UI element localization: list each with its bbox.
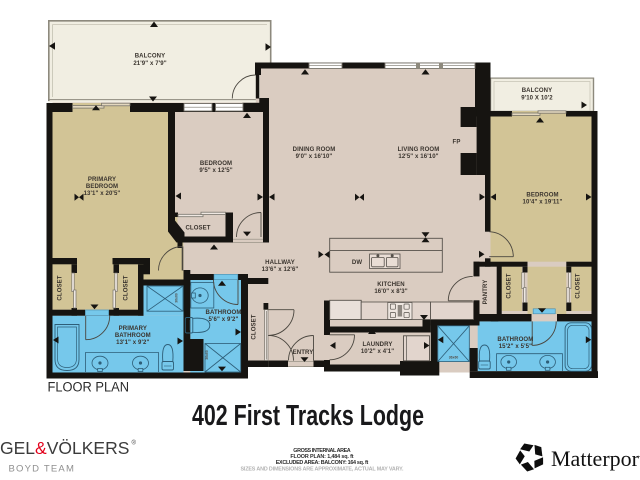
svg-text:BEDROOM: BEDROOM <box>200 161 232 167</box>
svg-text:13'6" x 12'6": 13'6" x 12'6" <box>262 267 299 273</box>
svg-text:CLOSET: CLOSET <box>576 273 582 298</box>
svg-text:BALCONY: BALCONY <box>522 88 553 94</box>
svg-text:10'4" x 19'11": 10'4" x 19'11" <box>523 200 563 206</box>
svg-text:LIVING ROOM: LIVING ROOM <box>398 147 440 153</box>
svg-text:PANTRY: PANTRY <box>483 280 489 305</box>
svg-text:BEDROOM: BEDROOM <box>86 184 118 190</box>
svg-text:13'1" x 20'5": 13'1" x 20'5" <box>84 191 121 197</box>
svg-text:10'2" x 4'1": 10'2" x 4'1" <box>361 349 394 355</box>
svg-text:BATHROOM: BATHROOM <box>206 310 242 316</box>
svg-text:CLOSET: CLOSET <box>252 314 258 339</box>
svg-text:LAUNDRY: LAUNDRY <box>362 342 392 348</box>
svg-text:36x60: 36x60 <box>175 293 179 303</box>
svg-text:BALCONY: BALCONY <box>135 54 166 60</box>
svg-text:ENGEL&VÖLKERS: ENGEL&VÖLKERS <box>0 438 129 458</box>
svg-text:®: ® <box>132 440 137 447</box>
svg-text:15'2" x 5'5": 15'2" x 5'5" <box>499 344 532 350</box>
svg-text:CLOSET: CLOSET <box>185 226 210 232</box>
svg-text:BEDROOM: BEDROOM <box>526 193 558 199</box>
svg-text:CLOSET: CLOSET <box>124 275 130 300</box>
svg-text:HALLWAY: HALLWAY <box>265 260 295 266</box>
svg-text:9'0" x 16'10": 9'0" x 16'10" <box>296 154 333 160</box>
svg-text:DW: DW <box>352 260 362 266</box>
svg-text:FP: FP <box>453 140 461 146</box>
svg-text:SIZES AND DIMENSIONS ARE APPRO: SIZES AND DIMENSIONS ARE APPROXIMATE, AC… <box>241 467 405 473</box>
svg-text:FLOOR PLAN: 1,484 sq. ft: FLOOR PLAN: 1,484 sq. ft <box>290 454 353 460</box>
svg-text:DINING ROOM: DINING ROOM <box>293 147 336 153</box>
svg-text:Matterport: Matterport <box>551 446 640 471</box>
svg-text:KITCHEN: KITCHEN <box>377 282 405 288</box>
svg-text:5'6" x 9'2": 5'6" x 9'2" <box>209 317 239 323</box>
svg-text:16'0" x 8'3": 16'0" x 8'3" <box>374 289 407 295</box>
svg-text:13'1" x 9'2": 13'1" x 9'2" <box>116 340 149 346</box>
svg-text:CLOSET: CLOSET <box>507 273 513 298</box>
svg-text:BOYD TEAM: BOYD TEAM <box>9 464 76 475</box>
svg-text:9'10 X 10'2: 9'10 X 10'2 <box>521 96 553 102</box>
svg-text:GROSS INTERNAL AREA: GROSS INTERNAL AREA <box>293 448 350 454</box>
svg-text:PRIMARY: PRIMARY <box>119 326 147 332</box>
svg-text:EXCLUDED AREA: BALCONY: 164 sq: EXCLUDED AREA: BALCONY: 164 sq. ft <box>276 460 369 466</box>
svg-text:ENTRY: ENTRY <box>293 350 314 356</box>
svg-text:402 First Tracks Lodge: 402 First Tracks Lodge <box>192 400 424 432</box>
svg-text:36x60: 36x60 <box>205 350 209 360</box>
svg-text:12'5" x 16'10": 12'5" x 16'10" <box>398 154 438 160</box>
svg-text:36x60: 36x60 <box>449 356 459 360</box>
svg-text:BATHROOM: BATHROOM <box>497 337 533 343</box>
svg-text:9'5" x 12'5": 9'5" x 12'5" <box>199 168 232 174</box>
svg-text:CLOSET: CLOSET <box>58 275 64 300</box>
svg-text:BATHROOM: BATHROOM <box>115 333 151 339</box>
svg-text:21'9" x 7'9": 21'9" x 7'9" <box>133 61 166 67</box>
svg-text:FLOOR PLAN: FLOOR PLAN <box>48 380 130 395</box>
svg-text:PRIMARY: PRIMARY <box>88 177 116 183</box>
